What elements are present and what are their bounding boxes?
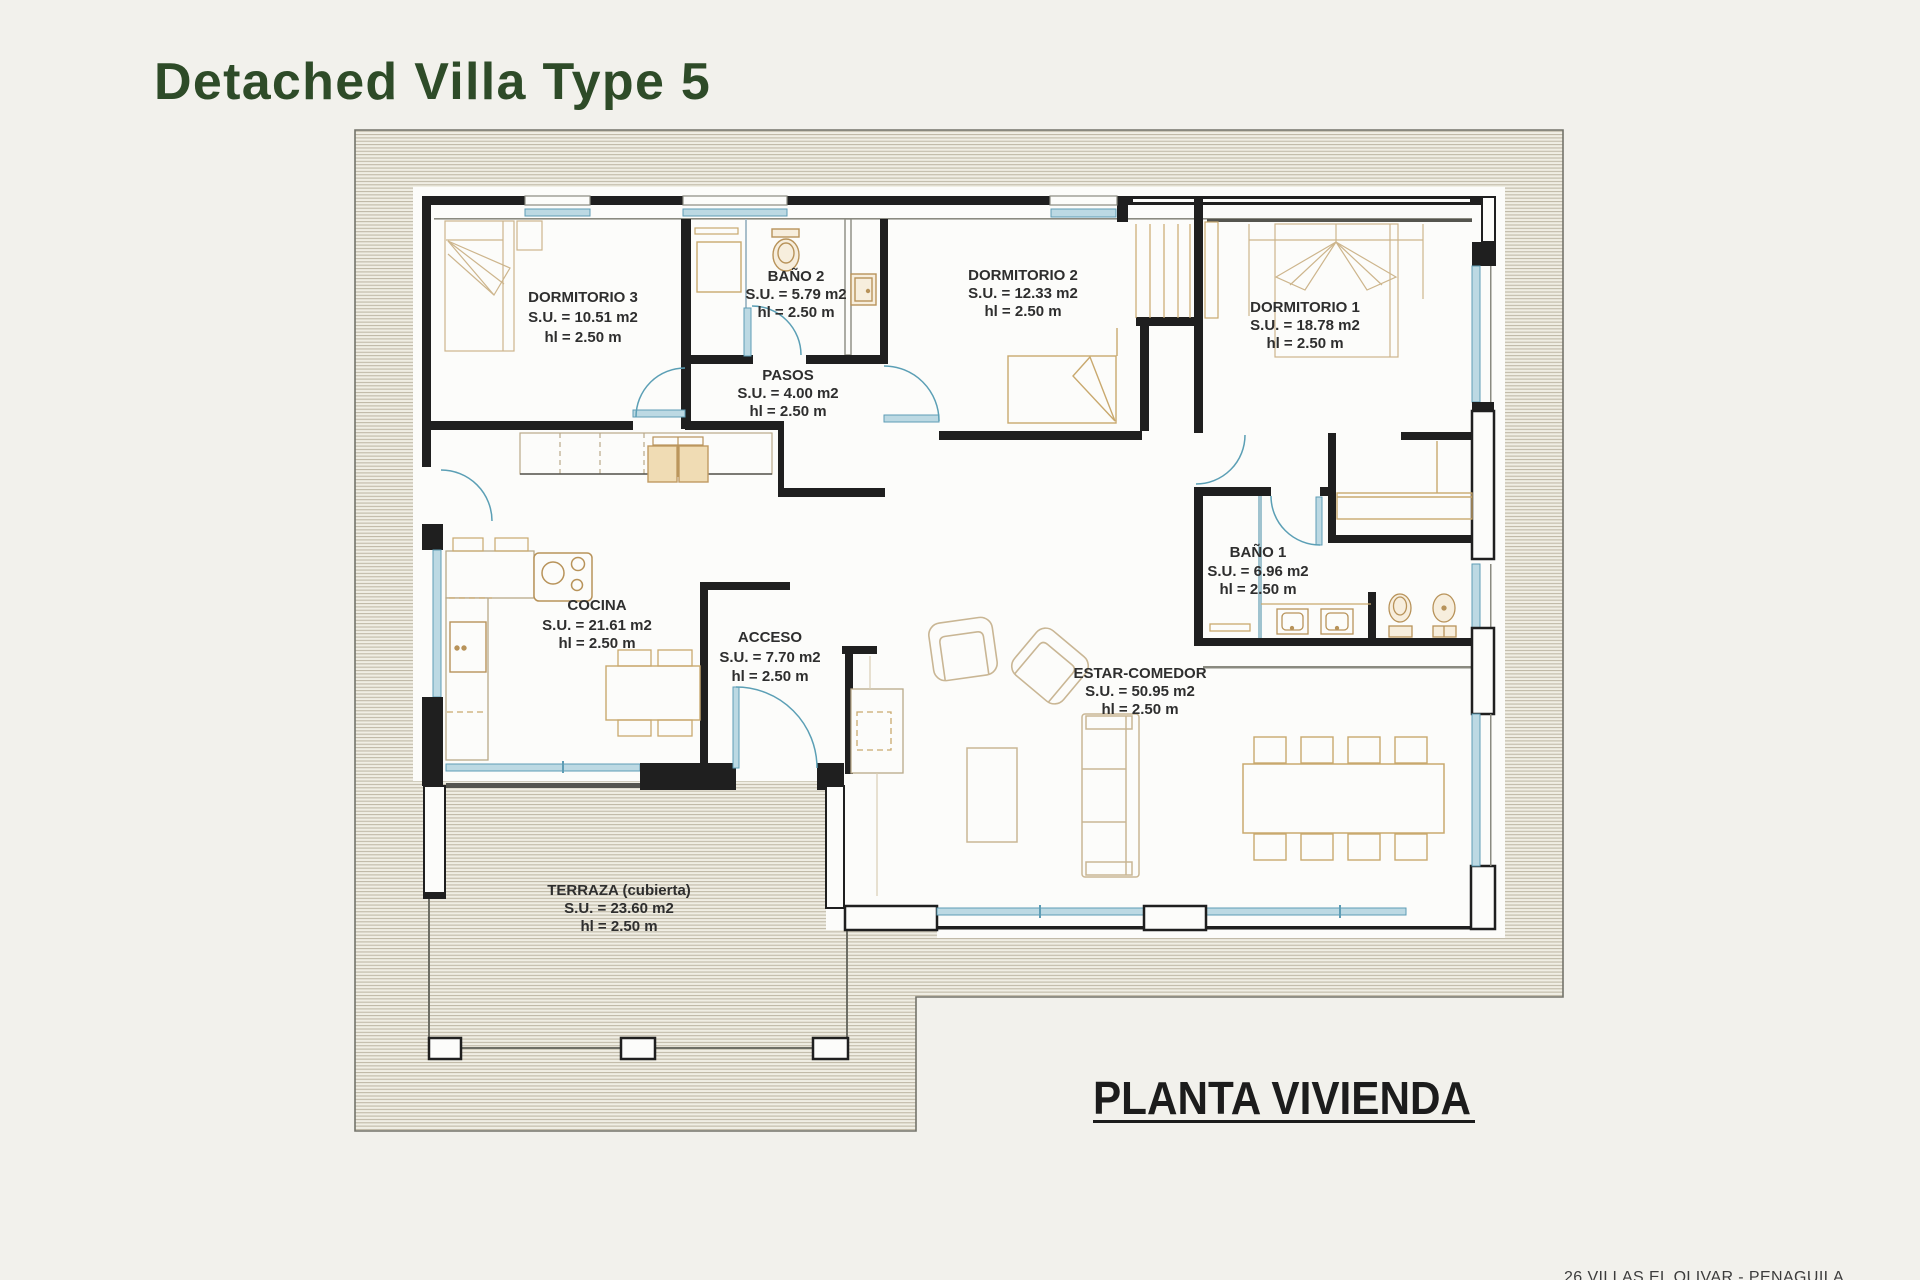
svg-text:COCINA: COCINA [567,597,626,614]
svg-text:PASOS: PASOS [762,367,813,384]
svg-text:hl = 2.50 m: hl = 2.50 m [1266,335,1343,352]
svg-text:S.U. = 12.33 m2: S.U. = 12.33 m2 [968,285,1078,302]
svg-text:TERRAZA (cubierta): TERRAZA (cubierta) [547,882,691,899]
svg-text:hl = 2.50 m: hl = 2.50 m [757,304,834,321]
svg-text:BAÑO 2: BAÑO 2 [768,267,825,285]
svg-text:hl = 2.50 m: hl = 2.50 m [544,329,621,346]
svg-text:DORMITORIO 2: DORMITORIO 2 [968,267,1078,284]
svg-text:DORMITORIO 3: DORMITORIO 3 [528,289,638,306]
svg-text:hl = 2.50 m: hl = 2.50 m [580,918,657,935]
svg-text:S.U. = 4.00 m2: S.U. = 4.00 m2 [737,385,838,402]
svg-text:hl = 2.50 m: hl = 2.50 m [749,403,826,420]
svg-text:26 VILLAS EL OLIVAR - PENAGUI: 26 VILLAS EL OLIVAR - PENAGUILA [1564,1269,1844,1280]
svg-text:S.U. = 18.78 m2: S.U. = 18.78 m2 [1250,317,1360,334]
svg-text:hl = 2.50 m: hl = 2.50 m [1101,701,1178,718]
svg-text:hl = 2.50 m: hl = 2.50 m [984,303,1061,320]
svg-text:S.U. = 5.79 m2: S.U. = 5.79 m2 [745,286,846,303]
svg-text:S.U. = 7.70 m2: S.U. = 7.70 m2 [719,649,820,666]
svg-text:S.U. = 6.96 m2: S.U. = 6.96 m2 [1207,563,1308,580]
svg-text:ESTAR-COMEDOR: ESTAR-COMEDOR [1073,665,1206,682]
svg-text:DORMITORIO 1: DORMITORIO 1 [1250,299,1360,316]
svg-text:hl = 2.50 m: hl = 2.50 m [731,668,808,685]
svg-text:ACCESO: ACCESO [738,629,803,646]
svg-text:S.U. = 21.61 m2: S.U. = 21.61 m2 [542,617,652,634]
svg-text:hl = 2.50 m: hl = 2.50 m [558,635,635,652]
svg-text:Detached Villa Type 5: Detached Villa Type 5 [154,53,711,111]
svg-text:S.U. = 50.95 m2: S.U. = 50.95 m2 [1085,683,1195,700]
svg-text:hl = 2.50 m: hl = 2.50 m [1219,581,1296,598]
svg-text:PLANTA VIVIENDA: PLANTA VIVIENDA [1093,1072,1471,1124]
svg-text:BAÑO 1: BAÑO 1 [1230,543,1287,561]
svg-text:S.U. = 10.51 m2: S.U. = 10.51 m2 [528,309,638,326]
svg-text:S.U. = 23.60 m2: S.U. = 23.60 m2 [564,900,674,917]
